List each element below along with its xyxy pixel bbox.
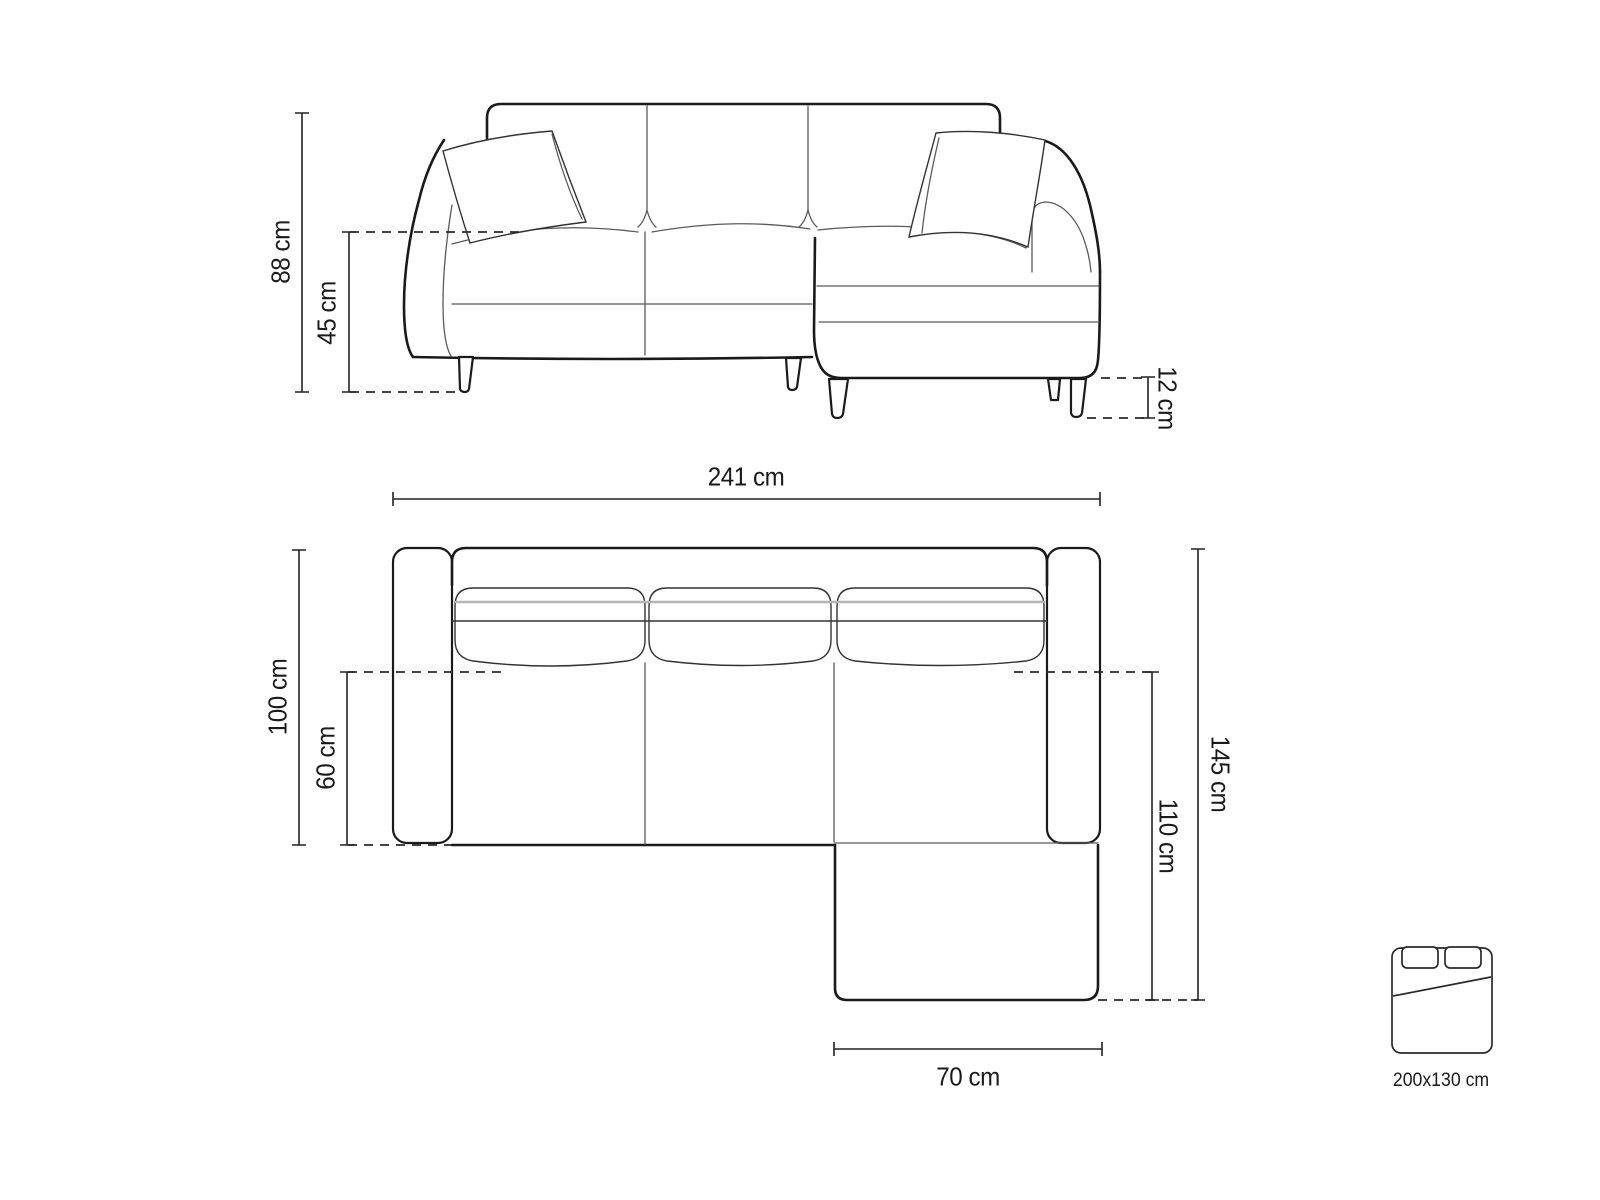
top-back-cushion-2 [649, 588, 831, 666]
top-chaise-outline [835, 845, 1098, 1000]
front-leg-middle [786, 358, 801, 390]
front-leg-chaise-right [1071, 379, 1086, 417]
front-backrest-divider-2 [799, 106, 817, 227]
dim-label-total-width: 241 cm [708, 462, 785, 493]
bed-pillow-left [1402, 947, 1438, 968]
front-right-pillow [909, 131, 1045, 247]
front-leg-chaise-left [829, 379, 848, 418]
front-left-arm [404, 140, 444, 357]
dim-label-chaise-total-depth: 145 cm [1205, 736, 1236, 813]
front-chaise-outline [814, 238, 1100, 378]
dim-line-total-height [295, 113, 309, 392]
dim-label-leg-height: 12 cm [1152, 366, 1183, 430]
front-left-arm-inner [443, 205, 452, 356]
dim-label-body-depth: 100 cm [263, 659, 294, 736]
dim-line-total-width [393, 492, 1100, 506]
dim-line-seat-depth [340, 672, 354, 845]
front-right-arm-face [1032, 202, 1091, 272]
front-view-drawing [295, 104, 1155, 418]
dim-label-chaise-inner-depth: 110 cm [1153, 799, 1184, 874]
diagram-artwork [0, 0, 1600, 1200]
top-right-armrest [1047, 548, 1100, 843]
dim-line-body-depth [292, 550, 306, 845]
dim-label-chaise-width: 70 cm [936, 1062, 1000, 1093]
dim-label-total-height: 88 cm [266, 220, 297, 284]
front-leg-chaise-rear [1048, 379, 1060, 400]
dim-line-chaise-width [834, 1042, 1102, 1056]
dim-label-seat-height: 45 cm [312, 281, 343, 345]
sofa-dimension-diagram: 88 cm 45 cm 12 cm 241 cm 100 cm 60 cm 14… [0, 0, 1600, 1200]
top-view-drawing [292, 492, 1205, 1056]
dim-line-seat-height [342, 232, 356, 392]
bed-pillow-right [1445, 947, 1481, 968]
sleeping-area-label: 200x130 cm [1393, 1070, 1489, 1092]
front-leg-left [459, 357, 473, 392]
top-back-cushion-1 [455, 588, 645, 666]
sleeping-area-icon [1392, 947, 1492, 1053]
top-body-top-edge [452, 548, 1047, 585]
top-left-armrest [393, 548, 452, 843]
dim-label-seat-depth: 60 cm [311, 726, 342, 790]
dim-line-chaise-total-depth [1191, 549, 1205, 1000]
top-back-cushion-3 [837, 588, 1044, 666]
front-left-pillow [443, 131, 586, 243]
front-backrest-divider-1 [638, 106, 656, 227]
